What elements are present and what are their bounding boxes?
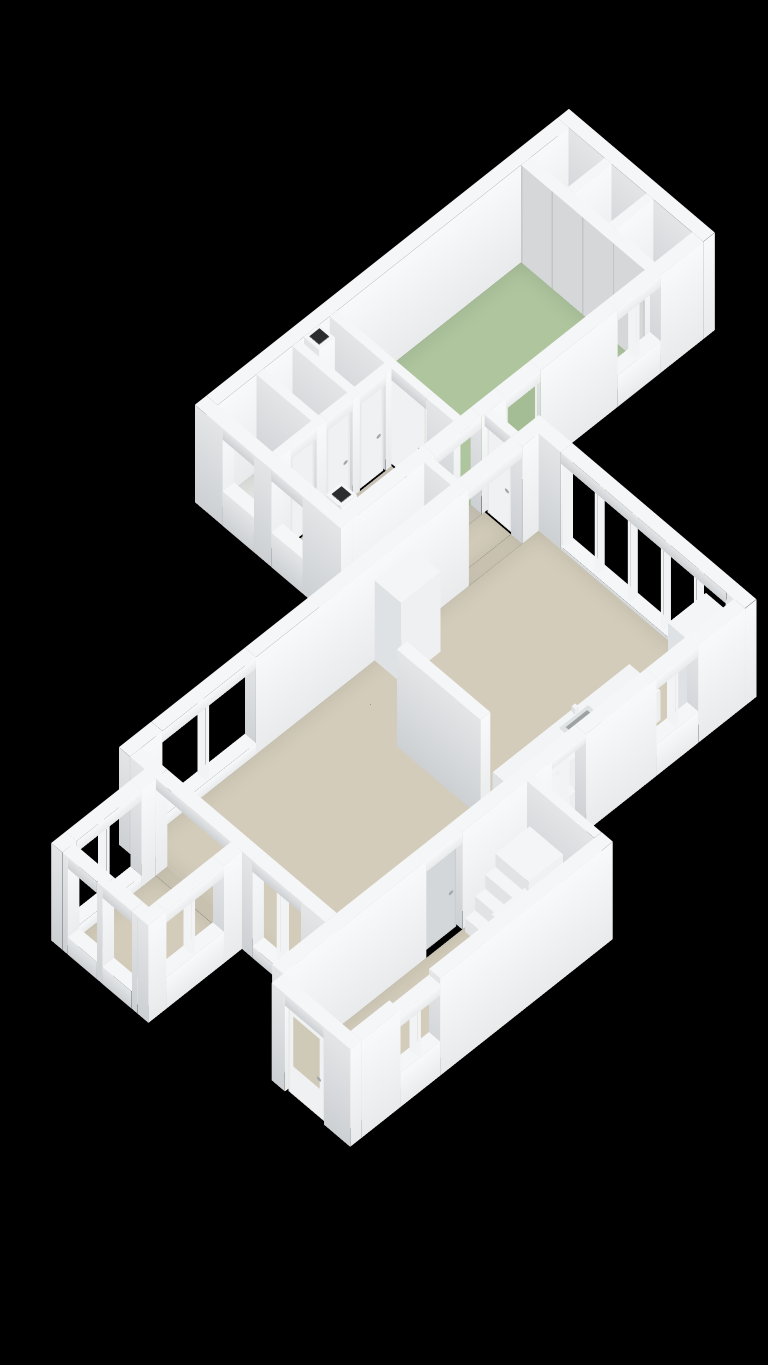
wall: [350, 1040, 362, 1147]
wall: [51, 843, 62, 950]
window-frame: [192, 898, 196, 955]
wall: [353, 394, 360, 497]
window-frame: [675, 670, 678, 727]
wall: [148, 911, 166, 1023]
wall: [254, 455, 271, 567]
wall: [539, 433, 561, 549]
window-frame: [636, 301, 639, 358]
window-frame: [418, 1009, 421, 1057]
wall: [745, 599, 757, 706]
wall: [224, 851, 242, 963]
wall: [703, 233, 715, 340]
wall: [141, 778, 155, 887]
window-frame: [206, 703, 210, 780]
wall: [386, 369, 392, 471]
floorplan-3d-view[interactable]: 3D floor plan: [0, 0, 768, 1365]
wall: [137, 916, 148, 1023]
wall: [272, 983, 285, 1092]
